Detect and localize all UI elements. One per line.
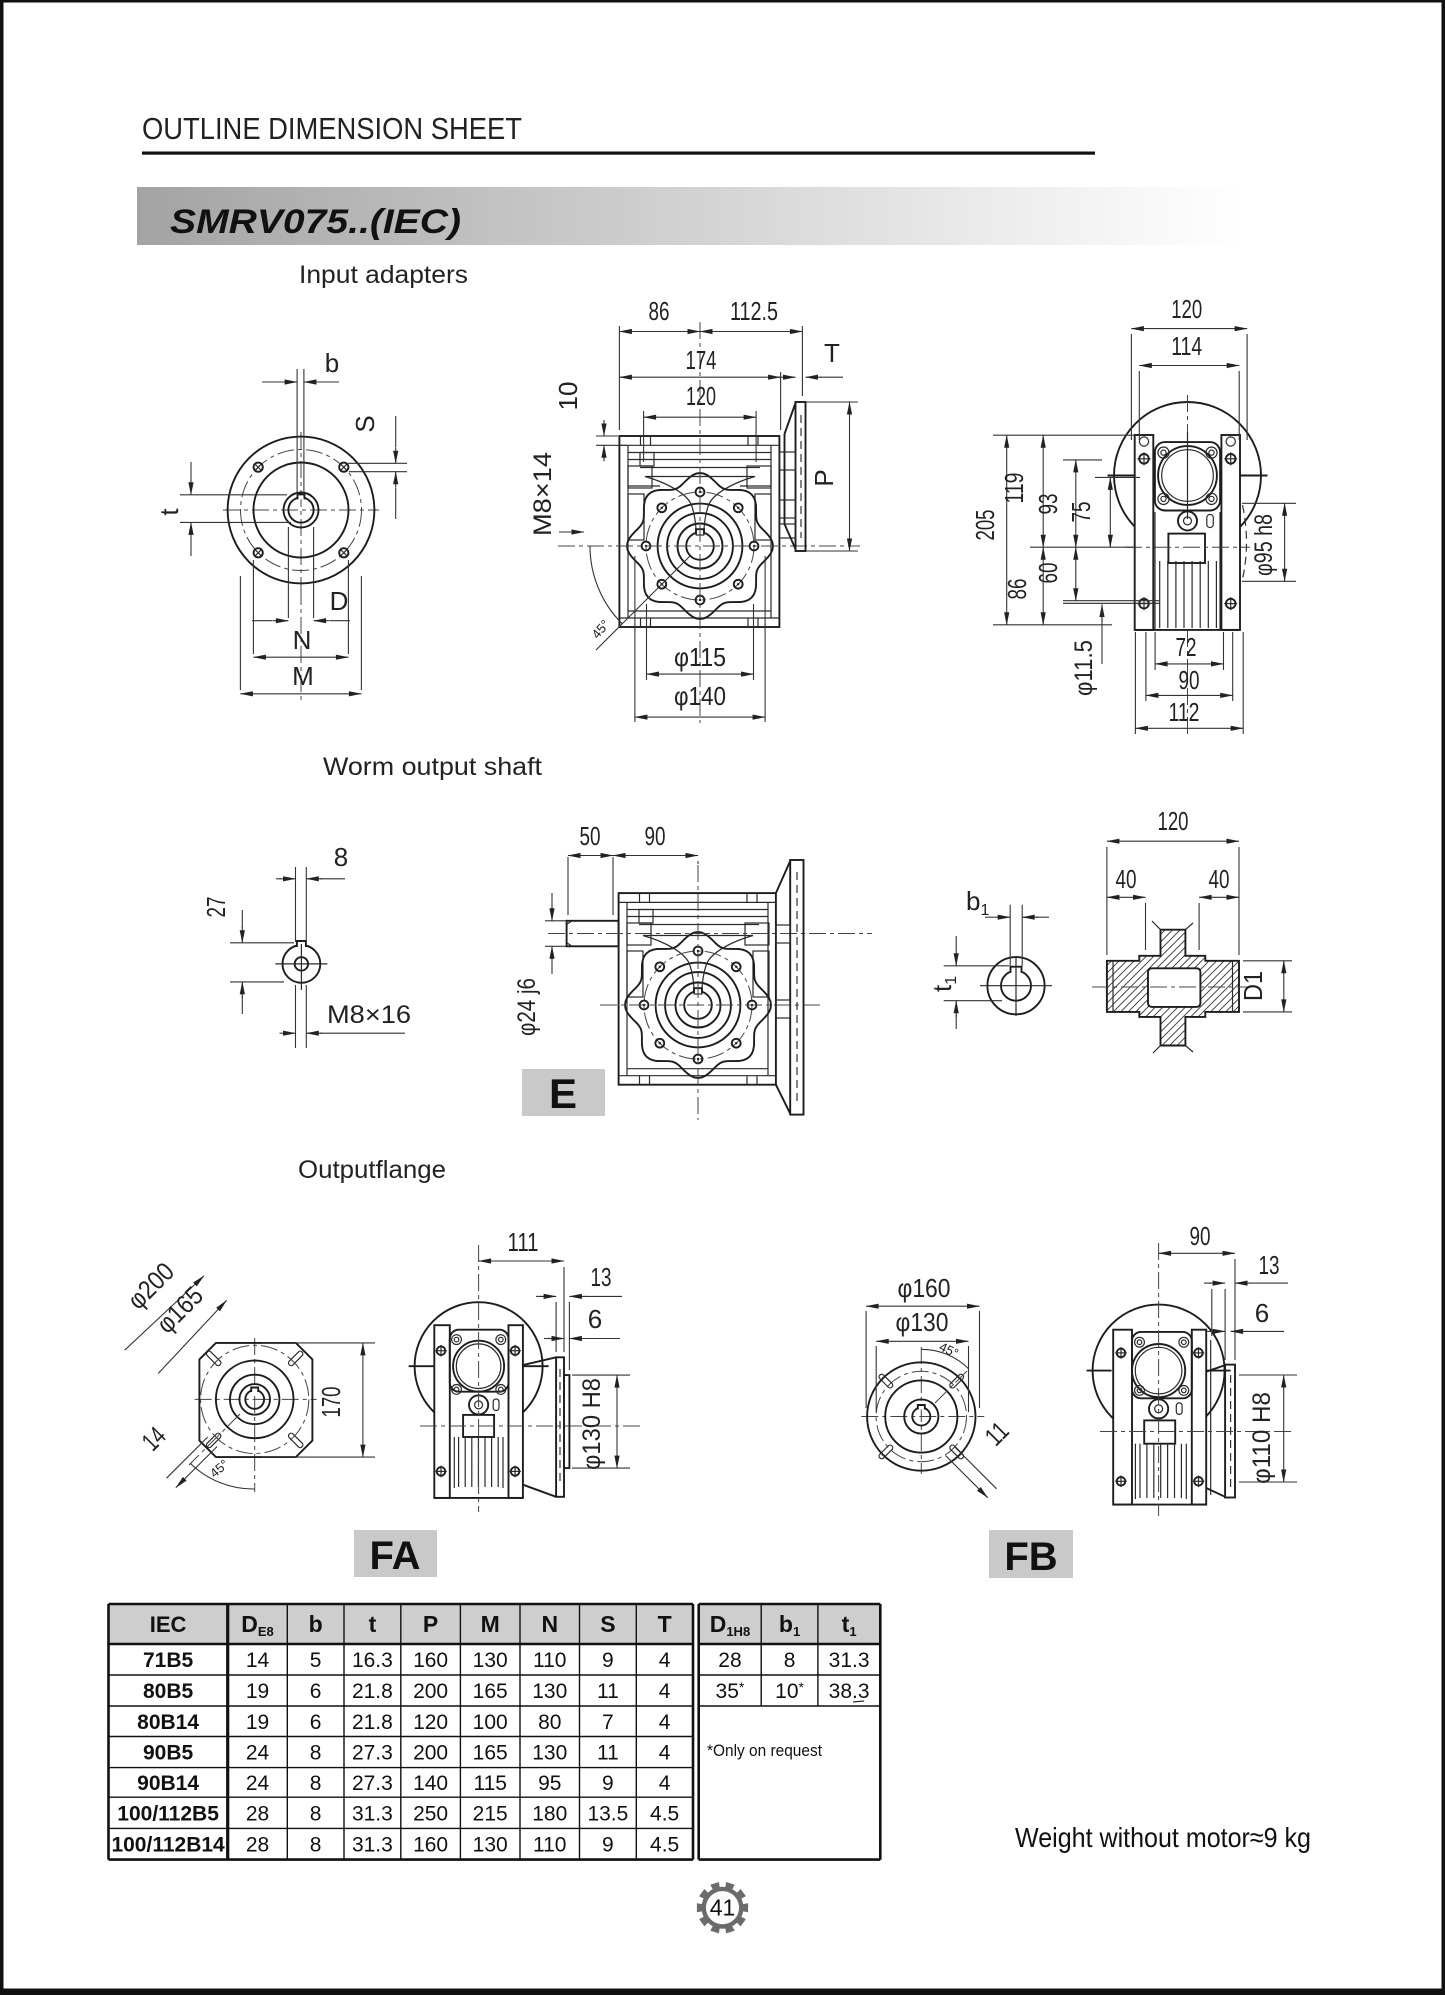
svg-text:90: 90	[1179, 665, 1200, 695]
svg-text:71B5: 71B5	[143, 1649, 194, 1672]
svg-text:φ95 h8: φ95 h8	[1250, 514, 1278, 576]
svg-text:200: 200	[413, 1680, 448, 1703]
svg-text:P: P	[423, 1611, 438, 1637]
svg-text:250: 250	[413, 1802, 448, 1825]
svg-text:Weight without motor≈9 kg: Weight without motor≈9 kg	[1015, 1822, 1311, 1853]
svg-text:60: 60	[1033, 563, 1063, 584]
svg-text:9: 9	[602, 1834, 614, 1857]
svg-text:28: 28	[718, 1649, 741, 1672]
svg-text:4.5: 4.5	[650, 1834, 679, 1857]
svg-text:4: 4	[659, 1649, 671, 1672]
svg-text:130: 130	[532, 1742, 567, 1765]
svg-text:41: 41	[710, 1895, 736, 1921]
svg-text:9: 9	[602, 1772, 614, 1795]
svg-text:86: 86	[1002, 579, 1032, 600]
svg-text:111: 111	[508, 1227, 539, 1257]
svg-text:130: 130	[473, 1649, 508, 1672]
svg-text:14: 14	[246, 1649, 270, 1672]
svg-text:8: 8	[334, 842, 348, 872]
svg-text:φ115: φ115	[674, 642, 726, 672]
svg-text:45°: 45°	[937, 1339, 961, 1361]
svg-text:7: 7	[602, 1711, 614, 1734]
svg-text:112: 112	[1169, 697, 1200, 727]
svg-text:10*: 10*	[775, 1679, 804, 1703]
svg-text:72: 72	[1176, 632, 1197, 662]
svg-text:t1: t1	[927, 976, 960, 992]
svg-text:120: 120	[1171, 294, 1202, 324]
svg-text:b: b	[325, 348, 339, 378]
svg-text:8: 8	[784, 1649, 796, 1672]
svg-text:14: 14	[136, 1421, 172, 1457]
svg-text:t: t	[369, 1611, 377, 1637]
svg-text:27.3: 27.3	[352, 1742, 393, 1765]
svg-text:21.8: 21.8	[352, 1680, 393, 1703]
svg-text:T: T	[658, 1611, 672, 1637]
svg-text:8: 8	[310, 1834, 322, 1857]
svg-text:19: 19	[246, 1680, 269, 1703]
svg-text:170: 170	[316, 1387, 346, 1418]
svg-text:114: 114	[1171, 331, 1202, 361]
svg-text:9: 9	[602, 1649, 614, 1672]
svg-text:11: 11	[979, 1416, 1015, 1452]
svg-text:11: 11	[597, 1742, 619, 1765]
svg-text:6: 6	[1255, 1298, 1269, 1328]
svg-text:*Only on request: *Only on request	[707, 1741, 822, 1760]
svg-text:13: 13	[591, 1262, 612, 1292]
svg-text:M: M	[292, 661, 314, 691]
svg-text:T: T	[824, 338, 840, 368]
svg-text:165: 165	[473, 1680, 508, 1703]
svg-text:28: 28	[246, 1802, 269, 1825]
svg-text:8: 8	[310, 1772, 322, 1795]
svg-text:FA: FA	[369, 1534, 420, 1578]
svg-text:180: 180	[532, 1802, 567, 1825]
svg-text:120: 120	[413, 1711, 448, 1734]
svg-text:35*: 35*	[716, 1679, 745, 1703]
svg-text:4: 4	[659, 1742, 671, 1765]
svg-text:28: 28	[246, 1834, 269, 1857]
svg-text:M8×14: M8×14	[529, 452, 557, 536]
svg-text:27.3: 27.3	[352, 1772, 393, 1795]
svg-text:D1: D1	[1238, 971, 1268, 1001]
svg-text:6: 6	[310, 1680, 322, 1703]
svg-text:6: 6	[310, 1711, 322, 1734]
svg-text:130: 130	[473, 1834, 508, 1857]
svg-text:40: 40	[1116, 864, 1137, 894]
svg-text:19: 19	[246, 1711, 269, 1734]
svg-text:165: 165	[473, 1742, 508, 1765]
svg-text:31.3: 31.3	[829, 1649, 870, 1672]
svg-text:100/112B5: 100/112B5	[117, 1802, 219, 1825]
svg-text:t: t	[154, 508, 184, 516]
svg-text:40: 40	[1209, 864, 1230, 894]
svg-text:N: N	[293, 625, 312, 655]
svg-text:21.8: 21.8	[352, 1711, 393, 1734]
svg-text:8: 8	[310, 1802, 322, 1825]
svg-text:8: 8	[310, 1742, 322, 1765]
svg-text:93: 93	[1033, 494, 1063, 515]
svg-text:6: 6	[588, 1304, 602, 1334]
svg-text:13: 13	[1259, 1250, 1280, 1280]
svg-text:M: M	[481, 1611, 500, 1637]
svg-text:b: b	[309, 1611, 323, 1637]
svg-text:φ24 j6: φ24 j6	[513, 978, 541, 1036]
svg-text:4.5: 4.5	[650, 1802, 679, 1825]
svg-text:80B5: 80B5	[143, 1680, 194, 1703]
svg-text:140: 140	[413, 1772, 448, 1795]
svg-text:11: 11	[597, 1680, 619, 1703]
svg-text:P: P	[809, 469, 839, 486]
svg-text:160: 160	[413, 1649, 448, 1672]
svg-text:120: 120	[1158, 806, 1189, 836]
svg-text:Input adapters: Input adapters	[299, 261, 468, 289]
svg-text:205: 205	[970, 510, 1000, 541]
svg-text:100: 100	[473, 1711, 508, 1734]
svg-text:75: 75	[1066, 502, 1096, 523]
svg-text:120: 120	[686, 381, 716, 411]
svg-text:φ130 H8: φ130 H8	[578, 1378, 606, 1470]
svg-text:130: 130	[532, 1680, 567, 1703]
svg-text:90B14: 90B14	[137, 1772, 199, 1795]
svg-text:90: 90	[645, 821, 666, 851]
svg-text:N: N	[541, 1611, 558, 1637]
svg-text:215: 215	[473, 1802, 508, 1825]
svg-text:M8×16: M8×16	[327, 1001, 411, 1029]
svg-text:24: 24	[246, 1742, 270, 1765]
svg-text:Outputflange: Outputflange	[298, 1156, 446, 1184]
svg-text:10: 10	[553, 382, 583, 411]
svg-text:27: 27	[201, 897, 231, 918]
svg-text:FB: FB	[1004, 1535, 1057, 1579]
svg-text:4: 4	[659, 1680, 671, 1703]
svg-text:φ110 H8: φ110 H8	[1248, 1392, 1276, 1484]
svg-text:160: 160	[413, 1834, 448, 1857]
svg-text:95: 95	[538, 1772, 561, 1795]
svg-text:S: S	[350, 415, 380, 432]
svg-text:φ11.5: φ11.5	[1070, 640, 1098, 696]
svg-text:Worm output shaft: Worm output shaft	[323, 753, 542, 781]
svg-text:24: 24	[246, 1772, 270, 1795]
svg-text:φ140: φ140	[674, 681, 726, 711]
svg-text:110: 110	[533, 1834, 566, 1857]
svg-text:OUTLINE DIMENSION SHEET: OUTLINE DIMENSION SHEET	[142, 111, 522, 146]
svg-text:IEC: IEC	[150, 1612, 187, 1637]
svg-text:S: S	[600, 1611, 615, 1637]
svg-text:174: 174	[686, 345, 717, 375]
svg-text:5: 5	[310, 1649, 322, 1672]
svg-text:86: 86	[649, 296, 670, 326]
svg-text:31.3: 31.3	[352, 1834, 393, 1857]
svg-text:E: E	[549, 1070, 577, 1117]
svg-text:φ130: φ130	[896, 1307, 949, 1337]
svg-text:80B14: 80B14	[137, 1711, 199, 1734]
svg-text:D: D	[330, 586, 349, 616]
svg-text:110: 110	[533, 1649, 566, 1672]
svg-text:80: 80	[538, 1711, 561, 1734]
svg-text:100/112B14: 100/112B14	[111, 1834, 225, 1857]
svg-text:38.3: 38.3	[829, 1680, 870, 1703]
svg-text:φ160: φ160	[898, 1273, 951, 1303]
svg-text:4: 4	[659, 1711, 671, 1734]
svg-text:13.5: 13.5	[587, 1802, 628, 1825]
svg-text:b1: b1	[966, 886, 989, 919]
svg-text:16.3: 16.3	[352, 1649, 393, 1672]
svg-text:115: 115	[473, 1772, 506, 1795]
svg-text:90B5: 90B5	[143, 1742, 194, 1765]
svg-text:45°: 45°	[207, 1456, 232, 1480]
svg-text:31.3: 31.3	[352, 1802, 393, 1825]
svg-text:200: 200	[413, 1742, 448, 1765]
svg-text:90: 90	[1190, 1221, 1211, 1251]
svg-text:50: 50	[580, 821, 601, 851]
svg-text:4: 4	[659, 1772, 671, 1795]
svg-text:SMRV075..(IEC): SMRV075..(IEC)	[170, 203, 461, 241]
svg-text:119: 119	[999, 473, 1029, 504]
svg-text:112.5: 112.5	[730, 296, 778, 326]
